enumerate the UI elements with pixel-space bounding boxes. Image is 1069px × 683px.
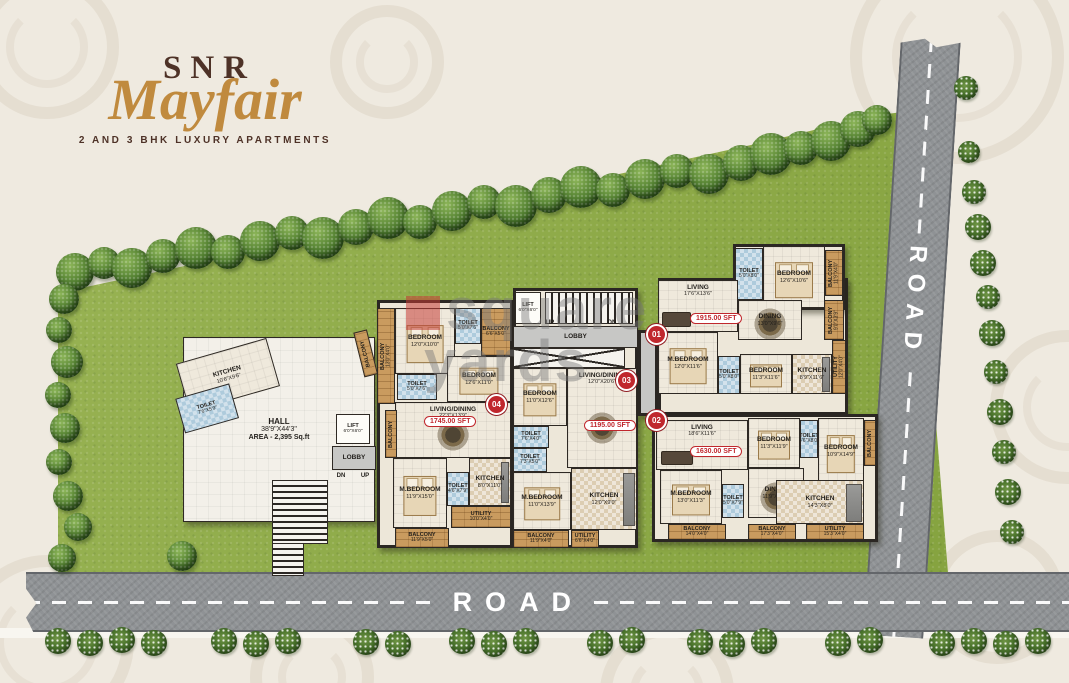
room-kitchen-u4-kitchen: KITCHEN8'0"X11'0" bbox=[469, 458, 511, 506]
room-m-bedroom-u4-mbedroom: M.BEDROOM11'9"X15'0" bbox=[393, 458, 447, 528]
room-kitchen-u1-kitchen: KITCHEN8'9"X11'6" bbox=[792, 354, 832, 394]
room-m-bedroom-u1-mbedroom: M.BEDROOM12'0"X11'6" bbox=[658, 332, 718, 394]
project-name: Mayfair bbox=[75, 71, 335, 129]
shrub-icon bbox=[587, 630, 613, 656]
room-label: 10'0"X4'0" bbox=[470, 517, 493, 523]
shrub-icon bbox=[513, 628, 539, 654]
shrub-icon bbox=[619, 627, 645, 653]
room-label: 5'0"X8'0" bbox=[719, 375, 739, 381]
room-label: 15'3"X4'0" bbox=[824, 532, 847, 538]
room-label: DN bbox=[337, 473, 346, 480]
room-bedroom-u2-bedroom-1: BEDROOM11'3"X11'9" bbox=[748, 418, 800, 468]
room-label: 12'0"X4'0" bbox=[839, 356, 845, 379]
tree-icon bbox=[64, 513, 92, 541]
counter-icon bbox=[846, 484, 862, 522]
room-label: UTILITY bbox=[833, 357, 839, 378]
room-label: 7'6"X4'0" bbox=[521, 437, 541, 443]
area-tag: 1745.00 SFT bbox=[424, 416, 476, 427]
room-balcony-u4-balcony-2: BALCONY6'6"X5'0" bbox=[481, 308, 511, 356]
room-label: TOILET bbox=[448, 483, 467, 489]
shrub-icon bbox=[979, 320, 1005, 346]
room-label: UTILITY bbox=[825, 526, 846, 532]
shrub-icon bbox=[825, 630, 851, 656]
room-label: BALCONY bbox=[683, 526, 710, 532]
room-label: LOBBY bbox=[564, 333, 587, 340]
room-label: LIVING bbox=[687, 284, 709, 291]
counter-icon bbox=[822, 357, 830, 392]
shrub-icon bbox=[995, 479, 1021, 505]
shrub-icon bbox=[77, 630, 103, 656]
room-up-hall-up: UP bbox=[355, 470, 375, 482]
shrub-icon bbox=[929, 630, 955, 656]
room-label: 4'6"X7'9" bbox=[448, 489, 468, 495]
shrub-icon bbox=[962, 180, 986, 204]
shrub-icon bbox=[243, 631, 269, 657]
counter-icon bbox=[623, 473, 635, 527]
project-tagline: 2 AND 3 BHK LUXURY APARTMENTS bbox=[75, 135, 335, 146]
room-label: KITCHEN bbox=[212, 364, 242, 379]
tree-icon bbox=[625, 159, 665, 199]
bed-icon bbox=[672, 484, 710, 515]
room-label: 4'6"X8'0" bbox=[800, 439, 818, 445]
room-balcony-u4-balcony-4: BALCONY11'9"X5'0" bbox=[395, 528, 449, 548]
tree-icon bbox=[240, 221, 280, 261]
sofa-icon bbox=[662, 312, 691, 327]
room-living-u2-living: LIVING18'6"X11'6" bbox=[656, 420, 748, 470]
room-label: 14'3"X8'0" bbox=[808, 503, 833, 509]
road-label-right: ROAD bbox=[897, 245, 932, 361]
shrub-icon bbox=[958, 141, 980, 163]
room-label: 11'9"X5'0" bbox=[411, 538, 433, 544]
unit-marker-01: 01 bbox=[646, 324, 667, 345]
shrub-icon bbox=[141, 630, 167, 656]
room-label: KITCHEN bbox=[590, 492, 619, 499]
room-label: LIFT bbox=[347, 423, 359, 429]
shrub-icon bbox=[1000, 520, 1024, 544]
room-label: 7'6"X5'9" bbox=[198, 406, 219, 417]
room-label: TOILET bbox=[520, 454, 539, 460]
room-label: 38'9"X44'3" bbox=[261, 426, 297, 434]
room-label: TOILET bbox=[800, 433, 818, 439]
room-label: 17'3"X4'0" bbox=[761, 532, 784, 538]
road-centerline bbox=[594, 601, 1069, 604]
room-bedroom-u1-bedroom-2: BEDROOM11'3"X11'6" bbox=[740, 354, 792, 394]
shrub-icon bbox=[992, 440, 1016, 464]
tree-icon bbox=[53, 481, 83, 511]
room-toilet-u3-toilet-2: TOILET7'3"X5'0" bbox=[513, 448, 547, 472]
bed-icon bbox=[523, 383, 556, 416]
room-balcony-u2-balcony-2: BALCONY14'0"X4'0" bbox=[668, 524, 726, 540]
room-toilet-u1-toilet-2: TOILET5'0"X8'0" bbox=[718, 356, 740, 394]
room-label: 8'9"X11'6" bbox=[800, 375, 825, 381]
room-label: 17'6"X13'6" bbox=[684, 291, 712, 297]
room-label: BALCONY bbox=[758, 526, 785, 532]
shrub-icon bbox=[976, 285, 1000, 309]
room-label: 5'0"X7'6" bbox=[458, 326, 478, 332]
unit-marker-02: 02 bbox=[646, 410, 667, 431]
tree-icon bbox=[45, 382, 71, 408]
bed-icon bbox=[670, 348, 707, 384]
area-tag: 1915.00 SFT bbox=[690, 313, 742, 324]
room-label: 12'0"X20'6" bbox=[588, 379, 616, 385]
road-label-bottom: ROAD bbox=[453, 587, 585, 618]
unit-marker-04: 04 bbox=[486, 394, 507, 415]
room-label: 9'0"X3'9" bbox=[834, 310, 840, 330]
room-balcony-u2-balcony-1: BALCONY bbox=[864, 420, 876, 466]
room-balcony-u4-balcony-3: BALCONY bbox=[385, 410, 397, 458]
shrub-icon bbox=[109, 627, 135, 653]
room-label: 18'6"X11'6" bbox=[688, 431, 716, 437]
bed-icon bbox=[524, 487, 560, 520]
room-label: 5'0"X7'9" bbox=[723, 501, 743, 507]
room-label: 6'0"X6'0" bbox=[518, 308, 537, 314]
room--hall-staircase bbox=[272, 480, 328, 544]
tree-icon bbox=[49, 284, 79, 314]
shrub-icon bbox=[481, 631, 507, 657]
room-label: TOILET bbox=[407, 381, 426, 387]
room-label: BALCONY bbox=[828, 306, 834, 333]
room-label: TOILET bbox=[458, 320, 477, 326]
shrub-icon bbox=[719, 631, 745, 657]
room-bedroom-u2-bedroom-2: BEDROOM10'9"X14'9" bbox=[818, 418, 864, 484]
room-label: BALCONY bbox=[359, 339, 372, 367]
room-toilet-u2-toilet-2: TOILET5'0"X7'9" bbox=[722, 484, 744, 518]
shrub-icon bbox=[857, 627, 883, 653]
table-icon bbox=[754, 308, 786, 340]
room--hall-staircase-ext bbox=[272, 543, 304, 576]
tree-icon bbox=[48, 544, 76, 572]
room-living-u1-living: LIVING17'6"X13'6" bbox=[658, 280, 738, 332]
shrub-icon bbox=[211, 628, 237, 654]
room-label: BALCONY bbox=[388, 420, 394, 447]
bed-icon bbox=[407, 325, 444, 363]
room-label: TOILET bbox=[723, 495, 742, 501]
room-toilet-u2-toilet-1: TOILET4'6"X8'0" bbox=[800, 420, 818, 458]
room-lobby-core-lobby: LOBBY bbox=[513, 326, 638, 348]
room-utility-u1-utility: UTILITY12'0"X4'0" bbox=[832, 340, 846, 394]
room-m-bedroom-u3-mbedroom: M.BEDROOM11'0"X13'9" bbox=[513, 472, 571, 530]
shrub-icon bbox=[984, 360, 1008, 384]
bed-icon bbox=[758, 431, 790, 460]
shrub-icon bbox=[1025, 628, 1051, 654]
shrub-icon bbox=[965, 214, 991, 240]
room-kitchen-u3-kitchen: KITCHEN12'0"X9'0" bbox=[571, 468, 637, 530]
room-label: UTILITY bbox=[575, 533, 596, 539]
room-label: BALCONY bbox=[408, 532, 435, 538]
room-toilet-u4-toilet-1: TOILET5'0"X7'6" bbox=[455, 308, 481, 344]
room-label: TOILET bbox=[196, 400, 216, 411]
room-balcony-u2-balcony-3: BALCONY17'3"X4'0" bbox=[748, 524, 796, 540]
room--core-void bbox=[513, 348, 625, 368]
room-label: UP bbox=[361, 473, 369, 480]
room-label: BALCONY bbox=[867, 429, 873, 456]
road-bottom: ROAD bbox=[26, 572, 1069, 632]
room-label: 7'3"X5'0" bbox=[520, 460, 540, 466]
shrub-icon bbox=[993, 631, 1019, 657]
bed-icon bbox=[403, 476, 436, 516]
room-lift-core-lift: LIFT6'0"X6'0" bbox=[515, 292, 541, 324]
unit-marker-03: 03 bbox=[616, 370, 637, 391]
tree-icon bbox=[50, 413, 80, 443]
room-label: TOILET bbox=[739, 268, 758, 274]
room-label: 14'0"X4'0" bbox=[686, 532, 709, 538]
room-label: BALCONY bbox=[828, 259, 834, 286]
room-label: LIFT bbox=[522, 302, 534, 308]
shrub-icon bbox=[954, 76, 978, 100]
room-label: 5'0"X8'0" bbox=[739, 274, 759, 280]
tree-icon bbox=[432, 191, 472, 231]
counter-icon bbox=[501, 462, 509, 504]
room-bedroom-u3-bedroom: BEDROOM11'0"X12'6" bbox=[513, 368, 567, 426]
room-label: AREA - 2,395 Sq.ft bbox=[249, 434, 310, 442]
tree-icon bbox=[51, 346, 83, 378]
room-toilet-u4-toilet-3: TOILET4'6"X7'9" bbox=[447, 472, 469, 506]
shrub-icon bbox=[385, 631, 411, 657]
shrub-icon bbox=[751, 628, 777, 654]
area-tag: 1195.00 SFT bbox=[584, 420, 636, 431]
shrub-icon bbox=[275, 628, 301, 654]
room-utility-u3-utility: UTILITY6'6"X4'0" bbox=[571, 530, 599, 548]
room-toilet-u4-toilet-2: TOILET5'0"X7'6" bbox=[397, 374, 437, 400]
room-balcony-u1-balcony-2: BALCONY9'0"X3'9" bbox=[824, 300, 844, 340]
room-dining-u1-dining: DINING13'0"X9'6" bbox=[738, 300, 802, 340]
room-label: 6'6"X4'0" bbox=[575, 539, 595, 545]
sofa-icon bbox=[661, 451, 694, 465]
room-lift-hall-lift: LIFT6'0"X6'0" bbox=[336, 414, 370, 444]
room-label: 8'0"X11'0" bbox=[478, 483, 503, 489]
room-label: 6'0"X6'0" bbox=[343, 429, 362, 435]
room-label: 13'0"X4'0" bbox=[386, 345, 392, 368]
site-plan-canvas: ROAD ROAD HALL38'9"X44'3"AREA - 2,395 Sq… bbox=[0, 0, 1069, 683]
room-balcony-u4-balcony-1: BALCONY13'0"X4'0" bbox=[377, 308, 395, 404]
room-label: KITCHEN bbox=[806, 495, 835, 502]
bed-icon bbox=[459, 368, 498, 395]
road-centerline bbox=[26, 601, 431, 604]
room-kitchen-u2-kitchen: KITCHEN14'3"X8'0" bbox=[776, 480, 864, 524]
room-label: HALL bbox=[268, 417, 289, 426]
shrub-icon bbox=[687, 629, 713, 655]
room-label: LOBBY bbox=[343, 454, 366, 461]
tree-icon bbox=[46, 317, 72, 343]
room-label: TOILET bbox=[521, 431, 540, 437]
room-toilet-u3-toilet-1: TOILET7'6"X4'0" bbox=[513, 426, 549, 448]
room-label: 5'0"X7'6" bbox=[407, 387, 427, 393]
room-m-bedroom-u2-mbedroom: M.BEDROOM13'0"X11'3" bbox=[660, 470, 722, 524]
room-label: BALCONY bbox=[527, 533, 554, 539]
shrub-icon bbox=[449, 628, 475, 654]
shrub-icon bbox=[961, 628, 987, 654]
room-utility-u4-utility: UTILITY10'0"X4'0" bbox=[451, 506, 511, 528]
room-label: TOILET bbox=[719, 369, 738, 375]
room-label: 11'9"X4'0" bbox=[530, 539, 552, 545]
room-bedroom-u4-bedroom-1: BEDROOM12'0"X10'0" bbox=[395, 308, 455, 374]
room-balcony-u1-balcony-1: BALCONY11'9"X4'0" bbox=[825, 250, 843, 296]
shrub-icon bbox=[970, 250, 996, 276]
project-logo: SNR Mayfair 2 AND 3 BHK LUXURY APARTMENT… bbox=[75, 50, 335, 146]
bed-icon bbox=[750, 364, 782, 387]
room-label: LIVING bbox=[691, 424, 713, 431]
tree-icon bbox=[46, 449, 72, 475]
room-label: UTILITY bbox=[471, 511, 492, 517]
swirl-ornament bbox=[330, 5, 444, 119]
room-label: 12'0"X9'0" bbox=[592, 500, 617, 506]
room-utility-u2-utility: UTILITY15'3"X4'0" bbox=[806, 524, 864, 540]
room-lobby-hall-lobby: LOBBY bbox=[332, 446, 376, 470]
room-label: 6'6"X5'0" bbox=[486, 332, 506, 338]
room-label: BALCONY bbox=[482, 326, 509, 332]
shrub-icon bbox=[353, 629, 379, 655]
room-bedroom-u1-bedroom-1: BEDROOM12'6"X10'6" bbox=[763, 246, 825, 308]
bed-icon bbox=[827, 435, 855, 473]
room-balcony-u3-balcony: BALCONY11'9"X4'0" bbox=[513, 530, 569, 548]
room-label: BALCONY bbox=[380, 342, 386, 369]
tree-icon bbox=[167, 541, 197, 571]
room-label: 11'9"X4'0" bbox=[834, 262, 840, 284]
room-toilet-u1-toilet-1: TOILET5'0"X8'0" bbox=[735, 248, 763, 300]
shrub-icon bbox=[987, 399, 1013, 425]
area-tag: 1630.00 SFT bbox=[690, 446, 742, 457]
bed-icon bbox=[775, 262, 813, 298]
road-centerline bbox=[917, 38, 932, 234]
room-label: LIVING/DINING bbox=[430, 406, 476, 413]
shrub-icon bbox=[45, 628, 71, 654]
tree-icon bbox=[862, 105, 892, 135]
room-dn-hall-dn: DN bbox=[331, 470, 351, 482]
